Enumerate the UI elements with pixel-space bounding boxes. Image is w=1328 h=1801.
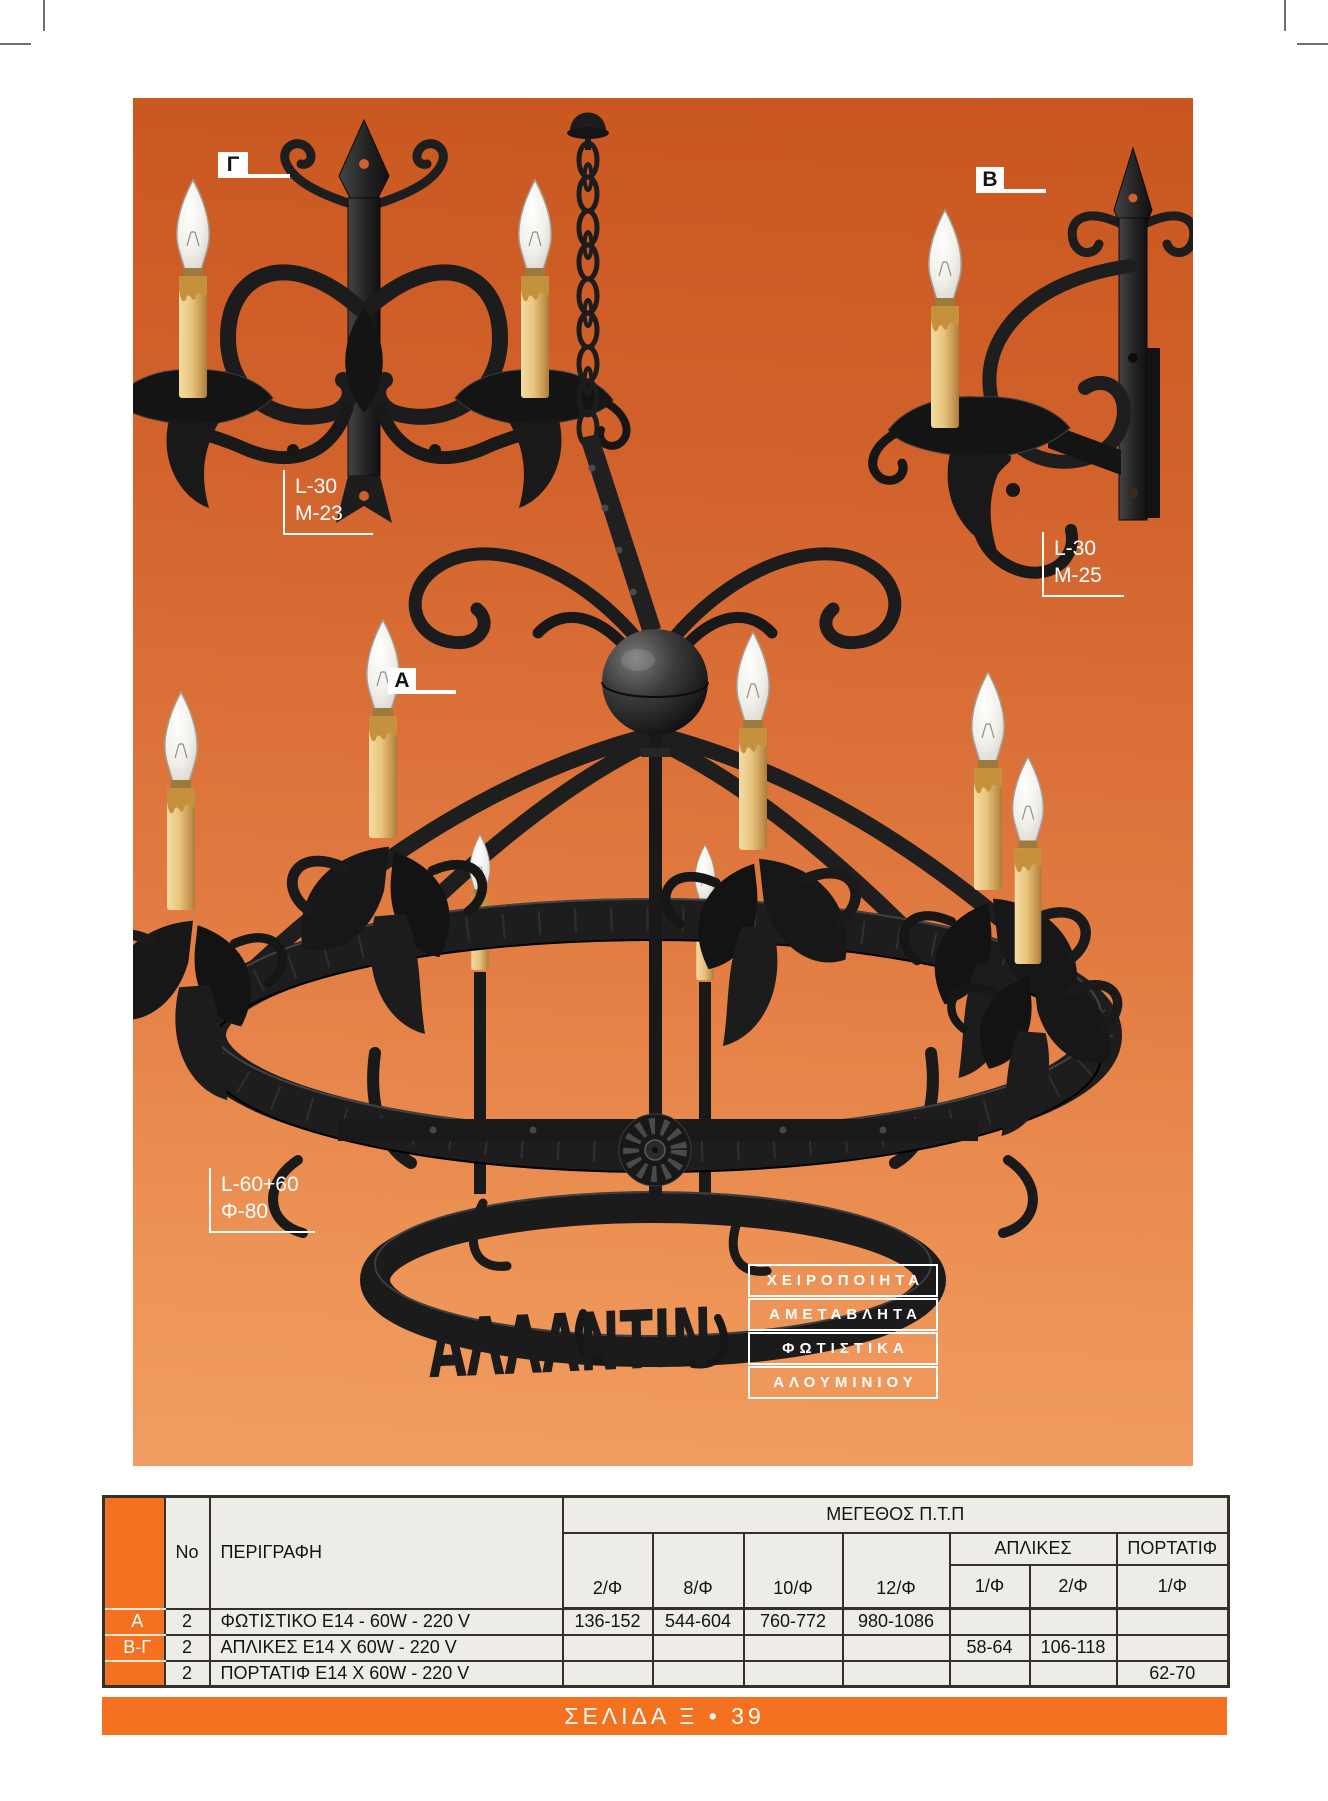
table-row: Β-Γ 2 ΑΠΛΙΚΕΣ Ε14 Χ 60W - 220 V 58-64 10… (104, 1635, 1229, 1661)
col-header-port-1f: 1/Φ (1117, 1565, 1229, 1609)
row-description: ΑΠΛΙΚΕΣ Ε14 Χ 60W - 220 V (210, 1635, 563, 1661)
col-header-apl-2f: 2/Φ (1030, 1565, 1117, 1609)
cell-value: 136-152 (563, 1609, 653, 1635)
tagline-box: ΑΜΕΤΑΒΛΗΤΑ (748, 1298, 938, 1331)
marker-beta: B (976, 167, 1004, 193)
cell-value (1117, 1609, 1229, 1635)
marker-alpha-line (416, 690, 456, 694)
marker-gamma: Γ (218, 152, 248, 178)
cell-value (1117, 1635, 1229, 1661)
row-key: Β-Γ (104, 1635, 165, 1661)
cell-value (950, 1609, 1030, 1635)
marker-beta-line (1004, 189, 1046, 193)
cell-value (744, 1661, 843, 1687)
code-line: L-30 (1054, 535, 1102, 562)
code-line: L-60+60 (221, 1171, 299, 1198)
group-header-portatif: ΠΟΡΤΑΤΙΦ (1117, 1533, 1229, 1565)
tagline-boxes: ΧΕΙΡΟΠΟΙΗΤΑ ΑΜΕΤΑΒΛΗΤΑ ΦΩΤΙΣΤΙΚΑ ΑΛΟΥΜΙΝ… (748, 1264, 938, 1400)
col-header-apl-1f: 1/Φ (950, 1565, 1030, 1609)
page-footer-bar: ΣΕΛΙΔΑ Ξ • 39 (102, 1697, 1227, 1735)
group-header-aplikes: ΑΠΛΙΚΕΣ (950, 1533, 1117, 1565)
marker-alpha: A (388, 668, 416, 694)
col-header-description: ΠΕΡΙΓΡΑΦΗ (210, 1497, 563, 1609)
code-line: Φ-80 (221, 1198, 299, 1225)
crop-mark-top-left-vertical (43, 0, 45, 31)
crop-mark-top-left-horizontal (0, 43, 31, 45)
cell-value: 106-118 (1030, 1635, 1117, 1661)
cell-value: 980-1086 (843, 1609, 950, 1635)
cell-value (563, 1661, 653, 1687)
row-key: A (104, 1609, 165, 1635)
row-no: 2 (165, 1661, 210, 1687)
cell-value: 58-64 (950, 1635, 1030, 1661)
cell-value (563, 1635, 653, 1661)
cell-value (653, 1635, 744, 1661)
cell-value (744, 1635, 843, 1661)
col-header-8f: 8/Φ (653, 1533, 744, 1609)
cell-value (1030, 1609, 1117, 1635)
product-code-label-left: L-30 M-23 (283, 470, 373, 535)
spec-table: No ΠΕΡΙΓΡΑΦΗ ΜΕΓΕΘΟΣ Π.Τ.Π 2/Φ 8/Φ 10/Φ … (102, 1495, 1230, 1688)
row-description: ΦΩΤΙΣΤΙΚΟ Ε14 - 60W - 220 V (210, 1609, 563, 1635)
table-row: 2 ΠΟΡΤΑΤΙΦ Ε14 Χ 60W - 220 V 62-70 (104, 1661, 1229, 1687)
row-no: 2 (165, 1635, 210, 1661)
col-header-10f: 10/Φ (744, 1533, 843, 1609)
cell-value (843, 1661, 950, 1687)
cell-value (843, 1635, 950, 1661)
cell-value: 760-772 (744, 1609, 843, 1635)
row-description: ΠΟΡΤΑΤΙΦ Ε14 Χ 60W - 220 V (210, 1661, 563, 1687)
col-header-12f: 12/Φ (843, 1533, 950, 1609)
row-key (104, 1661, 165, 1687)
cell-value: 62-70 (1117, 1661, 1229, 1687)
catalog-page: { "brand": { "script": "ΑΛΛΑΝΤΙΝ", "tagl… (0, 0, 1328, 1801)
col-header-2f: 2/Φ (563, 1533, 653, 1609)
tagline-box: ΑΛΟΥΜΙΝΙΟΥ (748, 1366, 938, 1399)
group-header-size: ΜΕΓΕΘΟΣ Π.Τ.Π (563, 1497, 1229, 1533)
crop-mark-top-right-horizontal (1297, 43, 1328, 45)
marker-gamma-line (248, 174, 290, 178)
brand-script-name: ΑΛΛΑΝΤΙΝ (428, 1290, 713, 1397)
photo-panel-background (133, 98, 1193, 1466)
page-number-text: ΣΕΛΙΔΑ Ξ • 39 (564, 1703, 765, 1730)
row-no: 2 (165, 1609, 210, 1635)
cell-value (653, 1661, 744, 1687)
tagline-box: ΦΩΤΙΣΤΙΚΑ (748, 1332, 938, 1365)
code-line: L-30 (295, 473, 343, 500)
row-key-header-cell (104, 1497, 165, 1609)
crop-mark-top-right-vertical (1284, 0, 1286, 31)
cell-value: 544-604 (653, 1609, 744, 1635)
code-line: M-23 (295, 500, 343, 527)
col-header-no: No (165, 1497, 210, 1609)
cell-value (950, 1661, 1030, 1687)
cell-value (1030, 1661, 1117, 1687)
table-row: A 2 ΦΩΤΙΣΤΙΚΟ Ε14 - 60W - 220 V 136-152 … (104, 1609, 1229, 1635)
tagline-box: ΧΕΙΡΟΠΟΙΗΤΑ (748, 1264, 938, 1297)
code-line: M-25 (1054, 562, 1102, 589)
product-code-label-right: L-30 M-25 (1042, 532, 1124, 597)
product-code-label-chandelier: L-60+60 Φ-80 (209, 1168, 315, 1233)
